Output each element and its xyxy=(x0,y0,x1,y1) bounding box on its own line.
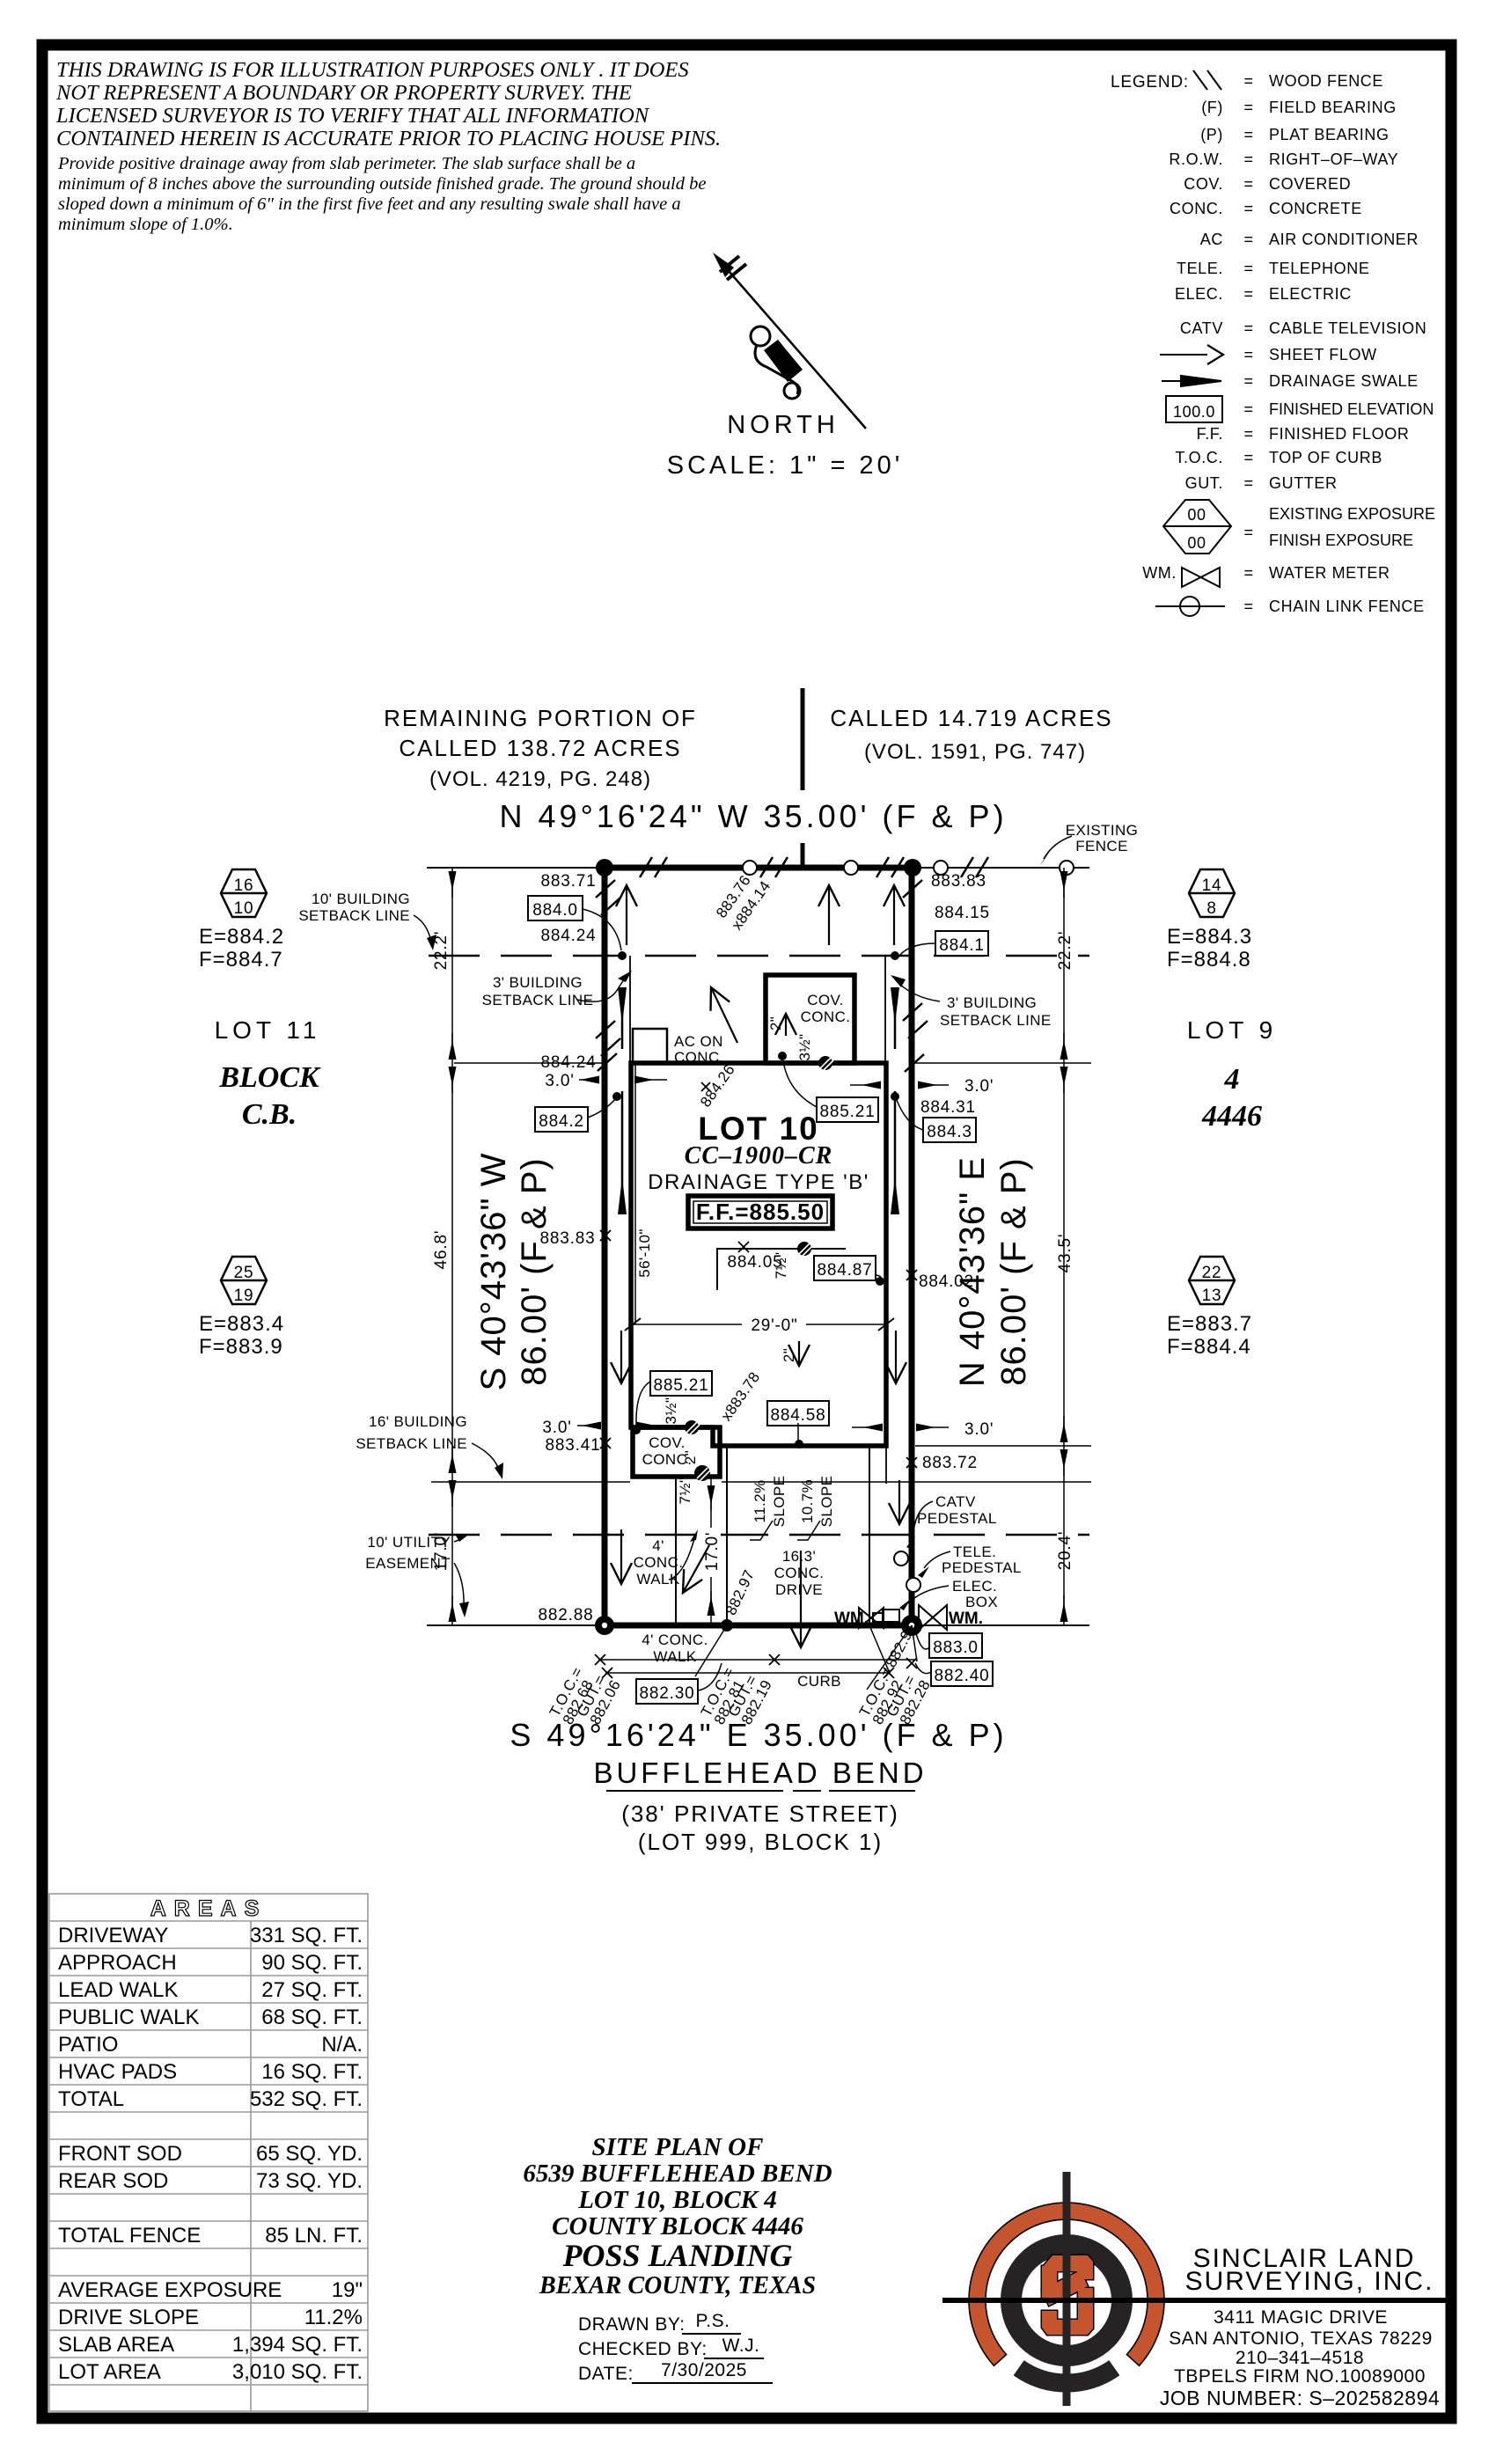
svg-text:884.2: 884.2 xyxy=(539,1112,584,1131)
svg-text:SLOPE: SLOPE xyxy=(771,1476,788,1528)
svg-text:SLOPE: SLOPE xyxy=(818,1476,835,1528)
svg-text:=: = xyxy=(1243,200,1253,217)
svg-text:=: = xyxy=(1243,524,1253,541)
svg-text:1,394 SQ. FT.: 1,394 SQ. FT. xyxy=(232,2333,363,2357)
svg-text:NOT REPRESENT A BOUNDARY OR PR: NOT REPRESENT A BOUNDARY OR PROPERTY SUR… xyxy=(55,81,632,105)
svg-text:56'-10": 56'-10" xyxy=(636,1228,653,1278)
svg-text:C.B.: C.B. xyxy=(242,1098,297,1131)
svg-text:10: 10 xyxy=(234,899,254,918)
svg-text:COV.: COV. xyxy=(807,992,844,1008)
svg-text:=: = xyxy=(1243,474,1253,492)
svg-text:CONC.: CONC. xyxy=(1170,200,1223,217)
svg-text:CABLE TELEVISION: CABLE TELEVISION xyxy=(1269,319,1426,337)
svg-text:DRAINAGE SWALE: DRAINAGE SWALE xyxy=(1269,372,1419,390)
svg-text:LOT 11: LOT 11 xyxy=(215,1016,321,1044)
svg-text:SURVEYING, INC.: SURVEYING, INC. xyxy=(1185,2267,1434,2296)
svg-text:85 LN. FT.: 85 LN. FT. xyxy=(265,2224,363,2248)
svg-text:NORTH: NORTH xyxy=(727,411,840,439)
svg-text:CATV: CATV xyxy=(935,1493,976,1510)
svg-text:883.0: 883.0 xyxy=(933,1639,979,1657)
svg-text:=: = xyxy=(1243,598,1253,615)
svg-text:883.41: 883.41 xyxy=(546,1436,601,1455)
svg-text:(P): (P) xyxy=(1200,126,1223,143)
svg-text:W.J.: W.J. xyxy=(722,2336,760,2356)
svg-text:=: = xyxy=(1243,425,1253,443)
svg-text:EXISTING EXPOSURE: EXISTING EXPOSURE xyxy=(1269,505,1435,523)
svg-text:FINISHED ELEVATION: FINISHED ELEVATION xyxy=(1269,400,1434,418)
svg-text:S 40°43'36" W: S 40°43'36" W xyxy=(474,1153,513,1391)
svg-text:HVAC PADS: HVAC PADS xyxy=(58,2060,177,2084)
svg-text:19: 19 xyxy=(234,1287,254,1305)
svg-text:AIR CONDITIONER: AIR CONDITIONER xyxy=(1269,231,1419,248)
svg-text:F.F.=885.50: F.F.=885.50 xyxy=(696,1199,825,1225)
svg-text:THIS DRAWING IS FOR ILLUSTRATI: THIS DRAWING IS FOR ILLUSTRATION PURPOSE… xyxy=(56,58,689,82)
svg-text:CALLED 14.719 ACRES: CALLED 14.719 ACRES xyxy=(830,705,1112,731)
svg-text:68 SQ. FT.: 68 SQ. FT. xyxy=(261,2006,363,2029)
svg-text:=: = xyxy=(1243,564,1253,582)
svg-text:TELEPHONE: TELEPHONE xyxy=(1269,260,1369,277)
svg-text:3' BUILDING: 3' BUILDING xyxy=(947,994,1037,1011)
svg-text:FENCE: FENCE xyxy=(1075,838,1128,854)
svg-text:46.8': 46.8' xyxy=(432,1230,451,1270)
svg-text:884.87: 884.87 xyxy=(818,1261,873,1280)
svg-text:(F): (F) xyxy=(1201,99,1223,116)
svg-text:20.4': 20.4' xyxy=(1056,1531,1074,1571)
svg-text:FRONT SOD: FRONT SOD xyxy=(58,2142,182,2166)
svg-text:BLOCK: BLOCK xyxy=(218,1061,321,1094)
svg-text:WOOD FENCE: WOOD FENCE xyxy=(1269,72,1383,90)
svg-text:884.0: 884.0 xyxy=(532,901,578,920)
svg-text:RIGHT–OF–WAY: RIGHT–OF–WAY xyxy=(1269,150,1398,168)
svg-text:F=884.8: F=884.8 xyxy=(1167,948,1251,972)
svg-text:GUTTER: GUTTER xyxy=(1269,474,1338,492)
svg-text:LOT 10: LOT 10 xyxy=(698,1111,818,1147)
svg-text:S 49°16'24" E 35.00' (F & P): S 49°16'24" E 35.00' (F & P) xyxy=(510,1717,1007,1753)
svg-text:P.S.: P.S. xyxy=(696,2311,730,2331)
svg-text:LOT 9: LOT 9 xyxy=(1187,1016,1277,1044)
svg-text:R.O.W.: R.O.W. xyxy=(1169,150,1223,168)
svg-text:7½": 7½" xyxy=(677,1478,693,1505)
svg-text:DRIVEWAY: DRIVEWAY xyxy=(58,1924,168,1947)
svg-text:BUFFLEHEAD BEND: BUFFLEHEAD BEND xyxy=(593,1756,927,1789)
svg-text:22.2': 22.2' xyxy=(1056,931,1074,971)
svg-text:E=884.2: E=884.2 xyxy=(199,925,284,949)
svg-text:REAR SOD: REAR SOD xyxy=(58,2169,168,2193)
svg-text:DRAINAGE TYPE 'B': DRAINAGE TYPE 'B' xyxy=(648,1170,869,1194)
svg-text:65 SQ. YD.: 65 SQ. YD. xyxy=(256,2142,363,2166)
svg-text:(38' PRIVATE STREET): (38' PRIVATE STREET) xyxy=(621,1800,899,1827)
svg-text:4': 4' xyxy=(652,1537,664,1554)
svg-text:CONC.: CONC. xyxy=(774,1565,825,1581)
svg-text:Provide positive drainage away: Provide positive drainage away from slab… xyxy=(57,154,635,173)
svg-text:BOX: BOX xyxy=(965,1594,998,1610)
svg-text:(VOL. 1591, PG. 747): (VOL. 1591, PG. 747) xyxy=(864,740,1086,764)
svg-text:EASEMENT: EASEMENT xyxy=(365,1555,451,1572)
svg-text:25: 25 xyxy=(234,1264,254,1282)
svg-text:14: 14 xyxy=(1202,876,1222,895)
svg-text:27 SQ. FT.: 27 SQ. FT. xyxy=(261,1978,363,2002)
svg-text:WALK: WALK xyxy=(636,1571,679,1588)
svg-text:PUBLIC WALK: PUBLIC WALK xyxy=(58,2006,200,2029)
svg-text:884.02: 884.02 xyxy=(919,1272,974,1291)
svg-text:TELE.: TELE. xyxy=(1177,260,1223,277)
svg-text:883.83: 883.83 xyxy=(931,872,986,891)
svg-text:LICENSED SURVEYOR IS TO VERIFY: LICENSED SURVEYOR IS TO VERIFY THAT ALL … xyxy=(55,104,650,128)
svg-text:E=883.7: E=883.7 xyxy=(1167,1312,1252,1336)
svg-text:884.05: 884.05 xyxy=(728,1253,783,1272)
svg-text:SITE PLAN OF: SITE PLAN OF xyxy=(592,2133,764,2161)
svg-text:3411 MAGIC DRIVE: 3411 MAGIC DRIVE xyxy=(1214,2307,1388,2328)
svg-text:22: 22 xyxy=(1202,1264,1222,1282)
svg-text:ELEC.: ELEC. xyxy=(1175,285,1223,303)
svg-text:10.7%: 10.7% xyxy=(799,1479,816,1523)
svg-text:SETBACK LINE: SETBACK LINE xyxy=(482,992,594,1008)
svg-text:10' UTILITY: 10' UTILITY xyxy=(367,1534,451,1551)
svg-text:=: = xyxy=(1243,175,1253,193)
svg-text:73 SQ. YD.: 73 SQ. YD. xyxy=(256,2169,363,2193)
svg-text:=: = xyxy=(1243,150,1253,168)
svg-text:(LOT 999, BLOCK 1): (LOT 999, BLOCK 1) xyxy=(638,1829,883,1855)
svg-text:4446: 4446 xyxy=(1201,1100,1262,1133)
svg-text:PATIO: PATIO xyxy=(58,2033,118,2057)
svg-text:6539 BUFFLEHEAD BEND: 6539 BUFFLEHEAD BEND xyxy=(523,2160,832,2188)
svg-text:minimum slope of 1.0%.: minimum slope of 1.0%. xyxy=(58,215,233,234)
svg-text:SETBACK LINE: SETBACK LINE xyxy=(298,907,410,924)
svg-text:884.1: 884.1 xyxy=(939,936,985,955)
svg-text:SETBACK LINE: SETBACK LINE xyxy=(356,1435,467,1452)
svg-text:CALLED 138.72 ACRES: CALLED 138.72 ACRES xyxy=(399,735,681,761)
svg-text:LOT AREA: LOT AREA xyxy=(58,2360,161,2384)
svg-text:N 49°16'24" W 35.00' (F & P): N 49°16'24" W 35.00' (F & P) xyxy=(499,798,1007,834)
svg-text:29'-0": 29'-0" xyxy=(751,1316,797,1335)
svg-text:3.0': 3.0' xyxy=(964,1420,994,1439)
svg-text:PEDESTAL: PEDESTAL xyxy=(942,1559,1022,1576)
svg-text:APPROACH: APPROACH xyxy=(58,1951,177,1975)
svg-text:T.O.C.: T.O.C. xyxy=(1175,449,1223,466)
svg-text:16' BUILDING: 16' BUILDING xyxy=(369,1413,467,1430)
svg-text:882.30: 882.30 xyxy=(640,1684,695,1703)
svg-text:8: 8 xyxy=(1206,899,1216,918)
svg-text:N/A.: N/A. xyxy=(321,2033,363,2057)
svg-text:F=883.9: F=883.9 xyxy=(199,1335,283,1359)
svg-text:7/30/2025: 7/30/2025 xyxy=(661,2360,747,2380)
svg-text:3' BUILDING: 3' BUILDING xyxy=(493,974,583,991)
svg-text:WATER METER: WATER METER xyxy=(1269,564,1390,582)
svg-text:FINISHED FLOOR: FINISHED FLOOR xyxy=(1269,425,1409,443)
svg-text:FIELD BEARING: FIELD BEARING xyxy=(1269,99,1397,116)
svg-text:TBPELS FIRM NO.10089000: TBPELS FIRM NO.10089000 xyxy=(1174,2366,1426,2387)
svg-text:CC–1900–CR: CC–1900–CR xyxy=(685,1142,833,1170)
svg-text:=: = xyxy=(1243,260,1253,277)
svg-text:AREAS: AREAS xyxy=(150,1896,268,1921)
svg-text:532 SQ. FT.: 532 SQ. FT. xyxy=(250,2087,363,2111)
svg-text:LOT 10, BLOCK 4: LOT 10, BLOCK 4 xyxy=(577,2186,777,2214)
svg-text:SCALE: 1" = 20': SCALE: 1" = 20' xyxy=(667,451,903,480)
svg-text:minimum of 8 inches above the: minimum of 8 inches above the surroundin… xyxy=(58,174,706,194)
svg-text:884.3: 884.3 xyxy=(927,1123,972,1141)
svg-text:E=884.3: E=884.3 xyxy=(1167,925,1252,949)
svg-text:LEGEND:: LEGEND: xyxy=(1111,73,1189,92)
svg-text:00: 00 xyxy=(1187,506,1206,524)
svg-text:100.0: 100.0 xyxy=(1173,403,1215,421)
svg-text:11.2%: 11.2% xyxy=(752,1480,768,1523)
svg-text:DATE:: DATE: xyxy=(578,2364,634,2384)
svg-text:WM.: WM. xyxy=(1142,564,1177,582)
svg-text:884.31: 884.31 xyxy=(920,1098,976,1117)
svg-text:4: 4 xyxy=(1224,1063,1240,1096)
svg-text:86.00' (F & P): 86.00' (F & P) xyxy=(994,1157,1033,1386)
svg-text:=: = xyxy=(1243,400,1253,418)
svg-text:CONTAINED HEREIN IS ACCURATE P: CONTAINED HEREIN IS ACCURATE PRIOR TO PL… xyxy=(56,127,721,150)
svg-text:GUT.: GUT. xyxy=(1185,474,1223,492)
svg-text:PEDESTAL: PEDESTAL xyxy=(917,1510,997,1527)
svg-text:885.21: 885.21 xyxy=(820,1103,876,1121)
svg-text:00: 00 xyxy=(1187,534,1206,552)
svg-text:884.24: 884.24 xyxy=(541,927,597,945)
svg-text:TOTAL: TOTAL xyxy=(58,2087,124,2111)
svg-text:COVERED: COVERED xyxy=(1269,175,1351,193)
svg-text:F=884.4: F=884.4 xyxy=(1167,1335,1251,1359)
svg-text:884.24: 884.24 xyxy=(541,1053,597,1072)
svg-text:=: = xyxy=(1243,319,1253,337)
svg-text:883.72: 883.72 xyxy=(922,1454,978,1472)
svg-text:SLAB AREA: SLAB AREA xyxy=(58,2333,174,2357)
svg-text:=: = xyxy=(1243,231,1253,248)
svg-text:4' CONC.: 4' CONC. xyxy=(642,1632,708,1648)
svg-text:884.26: 884.26 xyxy=(697,1061,738,1110)
svg-text:SETBACK LINE: SETBACK LINE xyxy=(940,1012,1052,1029)
svg-text:11.2%: 11.2% xyxy=(304,2306,363,2329)
svg-text:90 SQ. FT.: 90 SQ. FT. xyxy=(261,1951,363,1975)
svg-text:EXISTING: EXISTING xyxy=(1066,822,1139,839)
svg-text:16.3': 16.3' xyxy=(782,1548,816,1565)
svg-text:CONC.: CONC. xyxy=(801,1008,851,1025)
svg-text:CHECKED BY:: CHECKED BY: xyxy=(578,2339,708,2359)
svg-text:884.15: 884.15 xyxy=(935,904,990,922)
svg-text:LEAD WALK: LEAD WALK xyxy=(58,1978,179,2002)
svg-text:=: = xyxy=(1243,346,1253,363)
svg-text:3½": 3½" xyxy=(796,1034,813,1061)
svg-text:TELE.: TELE. xyxy=(953,1544,996,1560)
svg-text:3.0': 3.0' xyxy=(964,1077,994,1096)
svg-text:2": 2" xyxy=(767,1016,784,1030)
svg-text:884.58: 884.58 xyxy=(771,1406,826,1425)
svg-text:883.71: 883.71 xyxy=(541,872,597,891)
svg-text:SHEET FLOW: SHEET FLOW xyxy=(1269,346,1377,363)
svg-text:DRIVE SLOPE: DRIVE SLOPE xyxy=(58,2306,199,2329)
svg-text:WM.: WM. xyxy=(949,1610,983,1628)
svg-text:882.40: 882.40 xyxy=(935,1667,990,1685)
svg-text:(VOL. 4219, PG. 248): (VOL. 4219, PG. 248) xyxy=(429,767,651,791)
svg-text:FINISH EXPOSURE: FINISH EXPOSURE xyxy=(1269,532,1413,549)
svg-text:3,010 SQ. FT.: 3,010 SQ. FT. xyxy=(232,2360,363,2384)
svg-text:F=884.7: F=884.7 xyxy=(199,948,283,972)
svg-text:CURB: CURB xyxy=(797,1673,841,1690)
svg-text:REMAINING PORTION OF: REMAINING PORTION OF xyxy=(384,705,697,731)
svg-text:86.00' (F & P): 86.00' (F & P) xyxy=(515,1157,554,1386)
svg-text:DRAWN BY:: DRAWN BY: xyxy=(578,2314,686,2335)
svg-text:16: 16 xyxy=(234,876,254,895)
svg-text:N 40°43'36" E: N 40°43'36" E xyxy=(953,1156,992,1387)
svg-text:10' BUILDING: 10' BUILDING xyxy=(312,891,410,907)
svg-text:3½": 3½" xyxy=(663,1397,679,1425)
svg-text:E=883.4: E=883.4 xyxy=(199,1312,284,1336)
svg-text:CONC.: CONC. xyxy=(674,1049,724,1066)
svg-text:POSS LANDING: POSS LANDING xyxy=(561,2238,792,2273)
svg-text:ELECTRIC: ELECTRIC xyxy=(1269,285,1352,303)
svg-text:2": 2" xyxy=(781,1348,797,1362)
svg-text:=: = xyxy=(1243,449,1253,466)
svg-text:sloped down a minimum of 6" in: sloped down a minimum of 6" in the first… xyxy=(58,194,681,214)
svg-text:TOP OF CURB: TOP OF CURB xyxy=(1269,449,1382,466)
svg-text:43.5': 43.5' xyxy=(1056,1234,1074,1273)
svg-text:COV.: COV. xyxy=(649,1434,686,1451)
svg-text:CATV: CATV xyxy=(1180,319,1223,337)
svg-text:JOB NUMBER: S–202582894: JOB NUMBER: S–202582894 xyxy=(1160,2387,1440,2409)
svg-text:=: = xyxy=(1243,285,1253,303)
svg-text:=: = xyxy=(1243,72,1253,90)
svg-text:x883.78: x883.78 xyxy=(718,1368,764,1424)
svg-text:210–341–4518: 210–341–4518 xyxy=(1236,2348,1364,2368)
svg-text:3.0': 3.0' xyxy=(542,1419,571,1437)
svg-text:COUNTY BLOCK 4446: COUNTY BLOCK 4446 xyxy=(552,2212,803,2240)
svg-text:WM.: WM. xyxy=(834,1610,869,1628)
svg-text:AC ON: AC ON xyxy=(674,1033,723,1050)
svg-text:883.83: 883.83 xyxy=(540,1229,596,1248)
svg-text:DRIVE: DRIVE xyxy=(775,1581,823,1598)
svg-text:2": 2" xyxy=(682,1450,699,1464)
svg-text:WALK: WALK xyxy=(653,1648,696,1665)
svg-text:PLAT BEARING: PLAT BEARING xyxy=(1269,126,1390,143)
svg-text:CONC.: CONC. xyxy=(634,1554,684,1571)
svg-text:ELEC.: ELEC. xyxy=(952,1578,997,1595)
svg-text:AC: AC xyxy=(1200,231,1223,248)
svg-text:885.21: 885.21 xyxy=(654,1376,709,1395)
svg-text:=: = xyxy=(1243,99,1253,116)
svg-text:COV.: COV. xyxy=(1184,175,1223,193)
svg-text:331 SQ. FT.: 331 SQ. FT. xyxy=(250,1924,363,1947)
svg-text:CHAIN LINK FENCE: CHAIN LINK FENCE xyxy=(1269,598,1425,615)
svg-text:3.0': 3.0' xyxy=(545,1072,574,1090)
svg-text:=: = xyxy=(1243,126,1253,143)
svg-text:19": 19" xyxy=(332,2278,363,2302)
svg-text:13: 13 xyxy=(1202,1287,1222,1305)
svg-text:SAN ANTONIO, TEXAS 78229: SAN ANTONIO, TEXAS 78229 xyxy=(1169,2328,1433,2349)
svg-text:F.F.: F.F. xyxy=(1197,425,1223,443)
svg-text:BEXAR COUNTY, TEXAS: BEXAR COUNTY, TEXAS xyxy=(539,2272,816,2299)
svg-text:AVERAGE EXPOSURE: AVERAGE EXPOSURE xyxy=(58,2278,282,2302)
svg-text:16 SQ. FT.: 16 SQ. FT. xyxy=(261,2060,363,2084)
svg-text:TOTAL FENCE: TOTAL FENCE xyxy=(58,2224,201,2248)
svg-text:=: = xyxy=(1243,372,1253,390)
svg-text:CONCRETE: CONCRETE xyxy=(1269,200,1362,217)
svg-text:882.88: 882.88 xyxy=(539,1606,594,1624)
